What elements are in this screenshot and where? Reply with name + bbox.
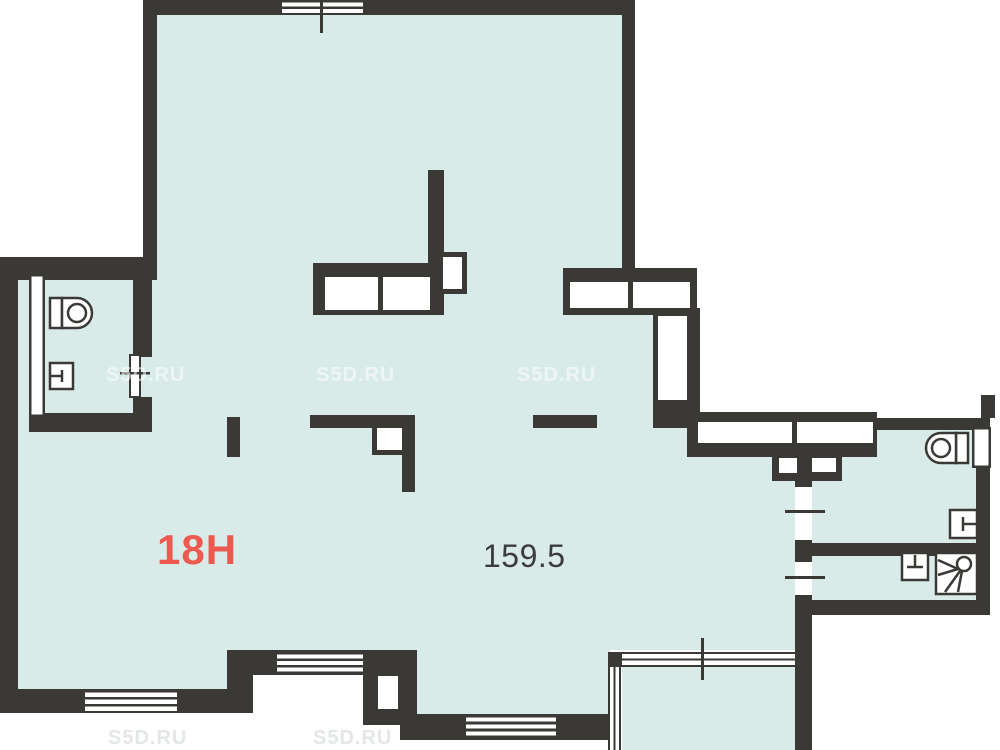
- sink-icon: [50, 363, 73, 389]
- unit-label: 18H: [157, 526, 237, 574]
- window-divider-line: [320, 0, 323, 33]
- shower-icon: [936, 553, 977, 594]
- watermark: S5D.RU: [316, 364, 395, 387]
- sink-icon: [902, 553, 928, 580]
- toilet-icon: [50, 298, 92, 328]
- watermark: S5D.RU: [106, 364, 185, 387]
- sink-icon: [950, 510, 977, 538]
- watermark: S5D.RU: [108, 727, 187, 750]
- floorplan-page: 18H 159.5 S5D.RU S5D.RU S5D.RU S5D.RU S5…: [0, 0, 1000, 750]
- toilet-icon: [926, 433, 968, 463]
- watermark: S5D.RU: [313, 727, 392, 750]
- watermark: S5D.RU: [517, 364, 596, 387]
- area-label: 159.5: [483, 538, 566, 575]
